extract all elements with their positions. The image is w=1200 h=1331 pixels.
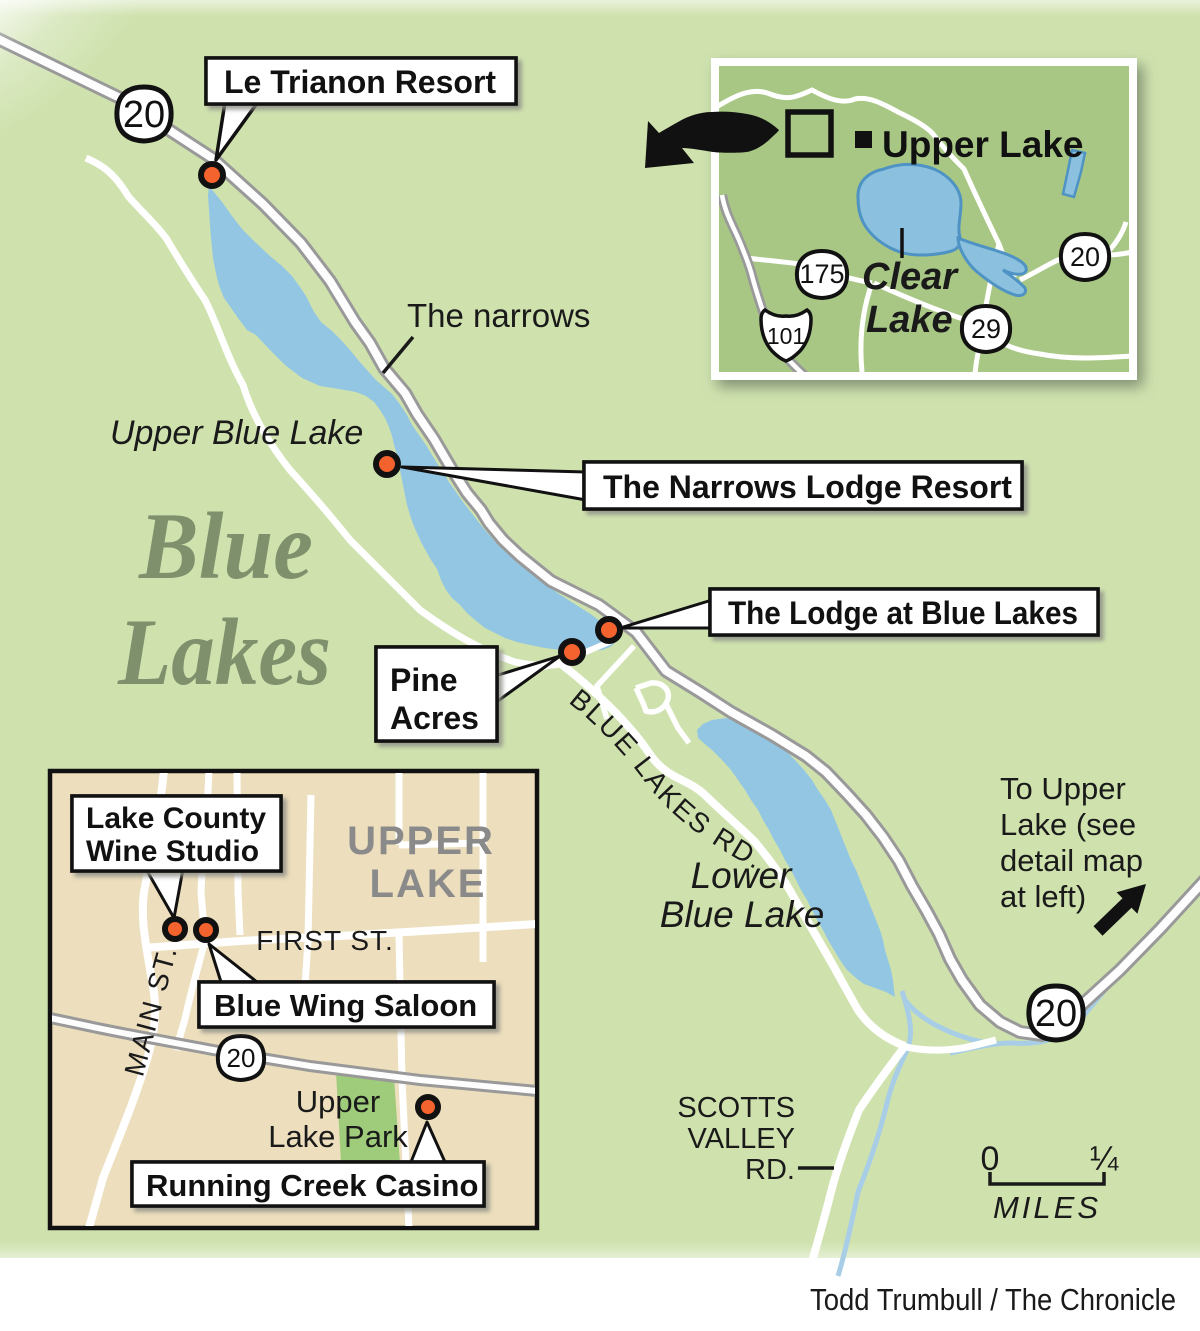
svg-text:20: 20 <box>1035 993 1077 1035</box>
svg-text:FIRST ST.: FIRST ST. <box>256 925 394 956</box>
svg-text:Blue Wing Saloon: Blue Wing Saloon <box>214 988 477 1023</box>
svg-text:To Upper: To Upper <box>1000 771 1126 806</box>
svg-text:Lake County: Lake County <box>86 802 266 835</box>
svg-text:Acres: Acres <box>390 700 479 736</box>
svg-text:VALLEY: VALLEY <box>688 1123 795 1155</box>
svg-text:Upper Blue Lake: Upper Blue Lake <box>110 414 363 452</box>
svg-text:The narrows: The narrows <box>407 297 590 334</box>
svg-text:175: 175 <box>799 259 844 289</box>
svg-text:Blue: Blue <box>138 493 313 599</box>
svg-text:20: 20 <box>123 94 165 136</box>
svg-text:The Lodge at Blue Lakes: The Lodge at Blue Lakes <box>728 595 1078 631</box>
svg-text:Running Creek Casino: Running Creek Casino <box>146 1168 478 1203</box>
svg-text:Pine: Pine <box>390 662 458 698</box>
svg-text:20: 20 <box>1070 242 1100 272</box>
svg-text:Todd Trumbull / The Chronicle: Todd Trumbull / The Chronicle <box>810 1282 1176 1317</box>
svg-text:Wine Studio: Wine Studio <box>86 835 259 868</box>
svg-text:20: 20 <box>227 1043 256 1073</box>
svg-text:at left): at left) <box>1000 879 1086 914</box>
svg-text:SCOTTS: SCOTTS <box>677 1092 795 1124</box>
svg-text:Lakes: Lakes <box>117 599 331 705</box>
svg-text:Lake: Lake <box>866 299 953 341</box>
svg-text:Blue Lake: Blue Lake <box>660 894 825 935</box>
svg-text:Upper Lake: Upper Lake <box>882 124 1084 165</box>
svg-text:Le Trianon Resort: Le Trianon Resort <box>224 64 496 100</box>
svg-text:Clear: Clear <box>862 256 959 298</box>
svg-text:RD.: RD. <box>745 1154 795 1186</box>
svg-text:detail map: detail map <box>1000 843 1143 878</box>
svg-text:MILES: MILES <box>993 1190 1101 1225</box>
svg-text:UPPER: UPPER <box>347 819 495 863</box>
svg-text:LAKE: LAKE <box>370 862 487 906</box>
svg-text:Upper: Upper <box>296 1084 380 1119</box>
svg-text:Lake Park: Lake Park <box>268 1119 408 1154</box>
svg-text:29: 29 <box>971 314 1001 344</box>
svg-text:The Narrows Lodge Resort: The Narrows Lodge Resort <box>603 469 1012 505</box>
svg-text:Lake (see: Lake (see <box>1000 807 1136 842</box>
svg-text:101: 101 <box>767 323 805 349</box>
